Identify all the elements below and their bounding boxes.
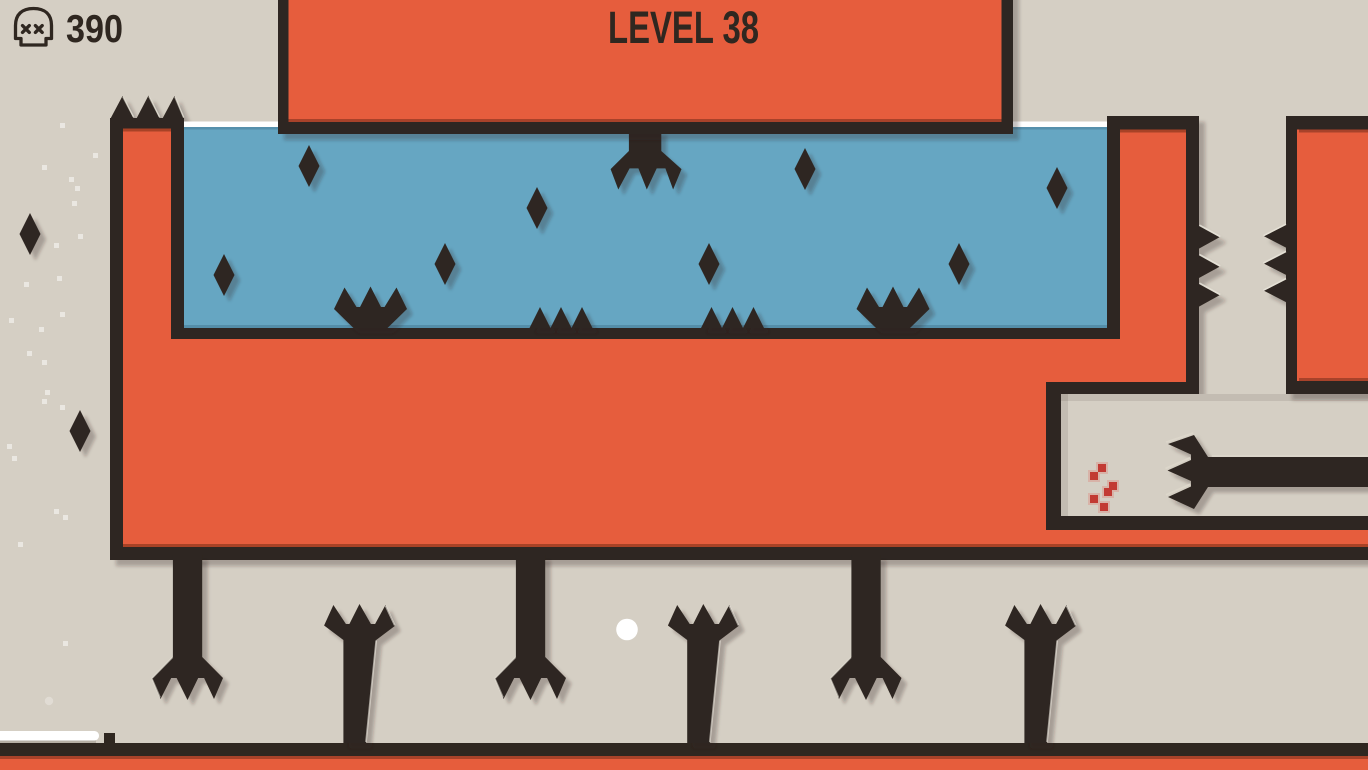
svg-text:LEVEL 38: LEVEL 38 <box>608 2 759 53</box>
svg-text:390: 390 <box>66 8 123 51</box>
